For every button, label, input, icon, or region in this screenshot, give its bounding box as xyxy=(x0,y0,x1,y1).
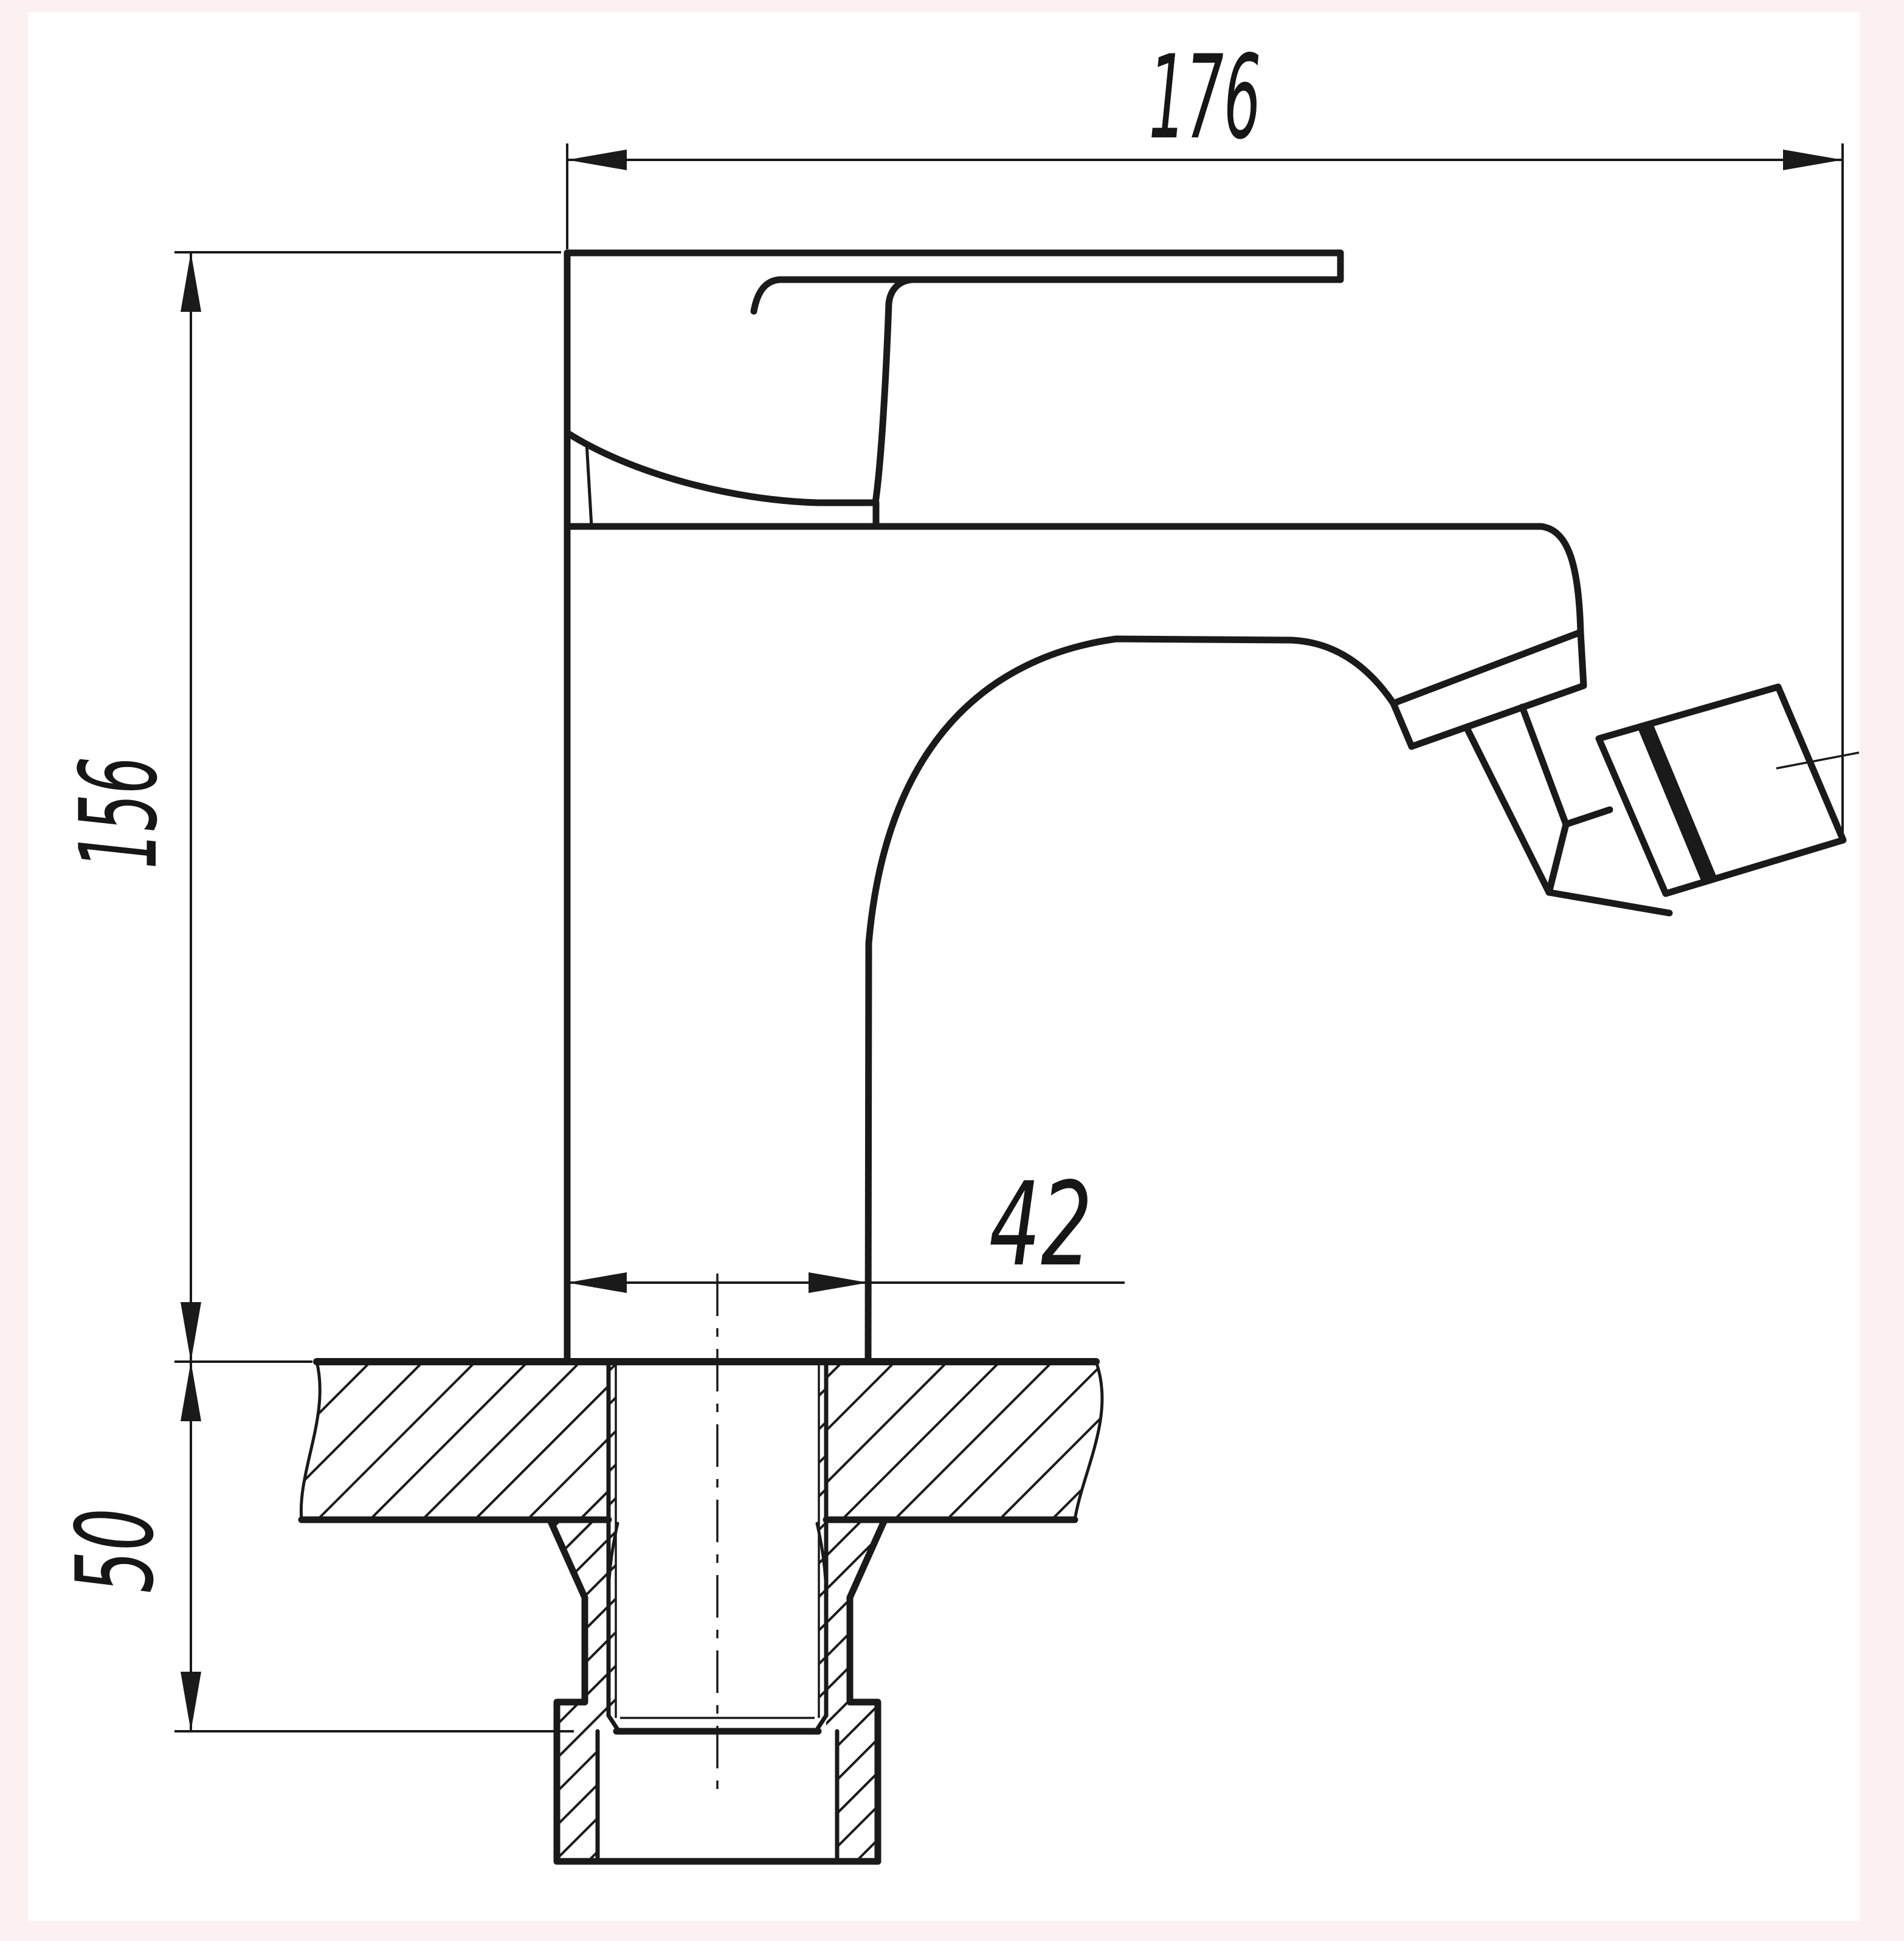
technical-drawing-page: 176 156 50 42 xyxy=(0,0,1904,1941)
counter-hatch-left xyxy=(301,1362,609,1520)
counter-hatch-right xyxy=(826,1362,1102,1520)
dimension-label-156: 156 xyxy=(58,757,181,869)
dimension-label-50: 50 xyxy=(54,1508,178,1593)
dimension-label-176: 176 xyxy=(1149,30,1261,165)
faucet-technical-drawing: 176 156 50 42 xyxy=(0,0,1904,1941)
dimension-label-42: 42 xyxy=(989,1157,1092,1292)
drawing-sheet xyxy=(28,12,1860,1921)
